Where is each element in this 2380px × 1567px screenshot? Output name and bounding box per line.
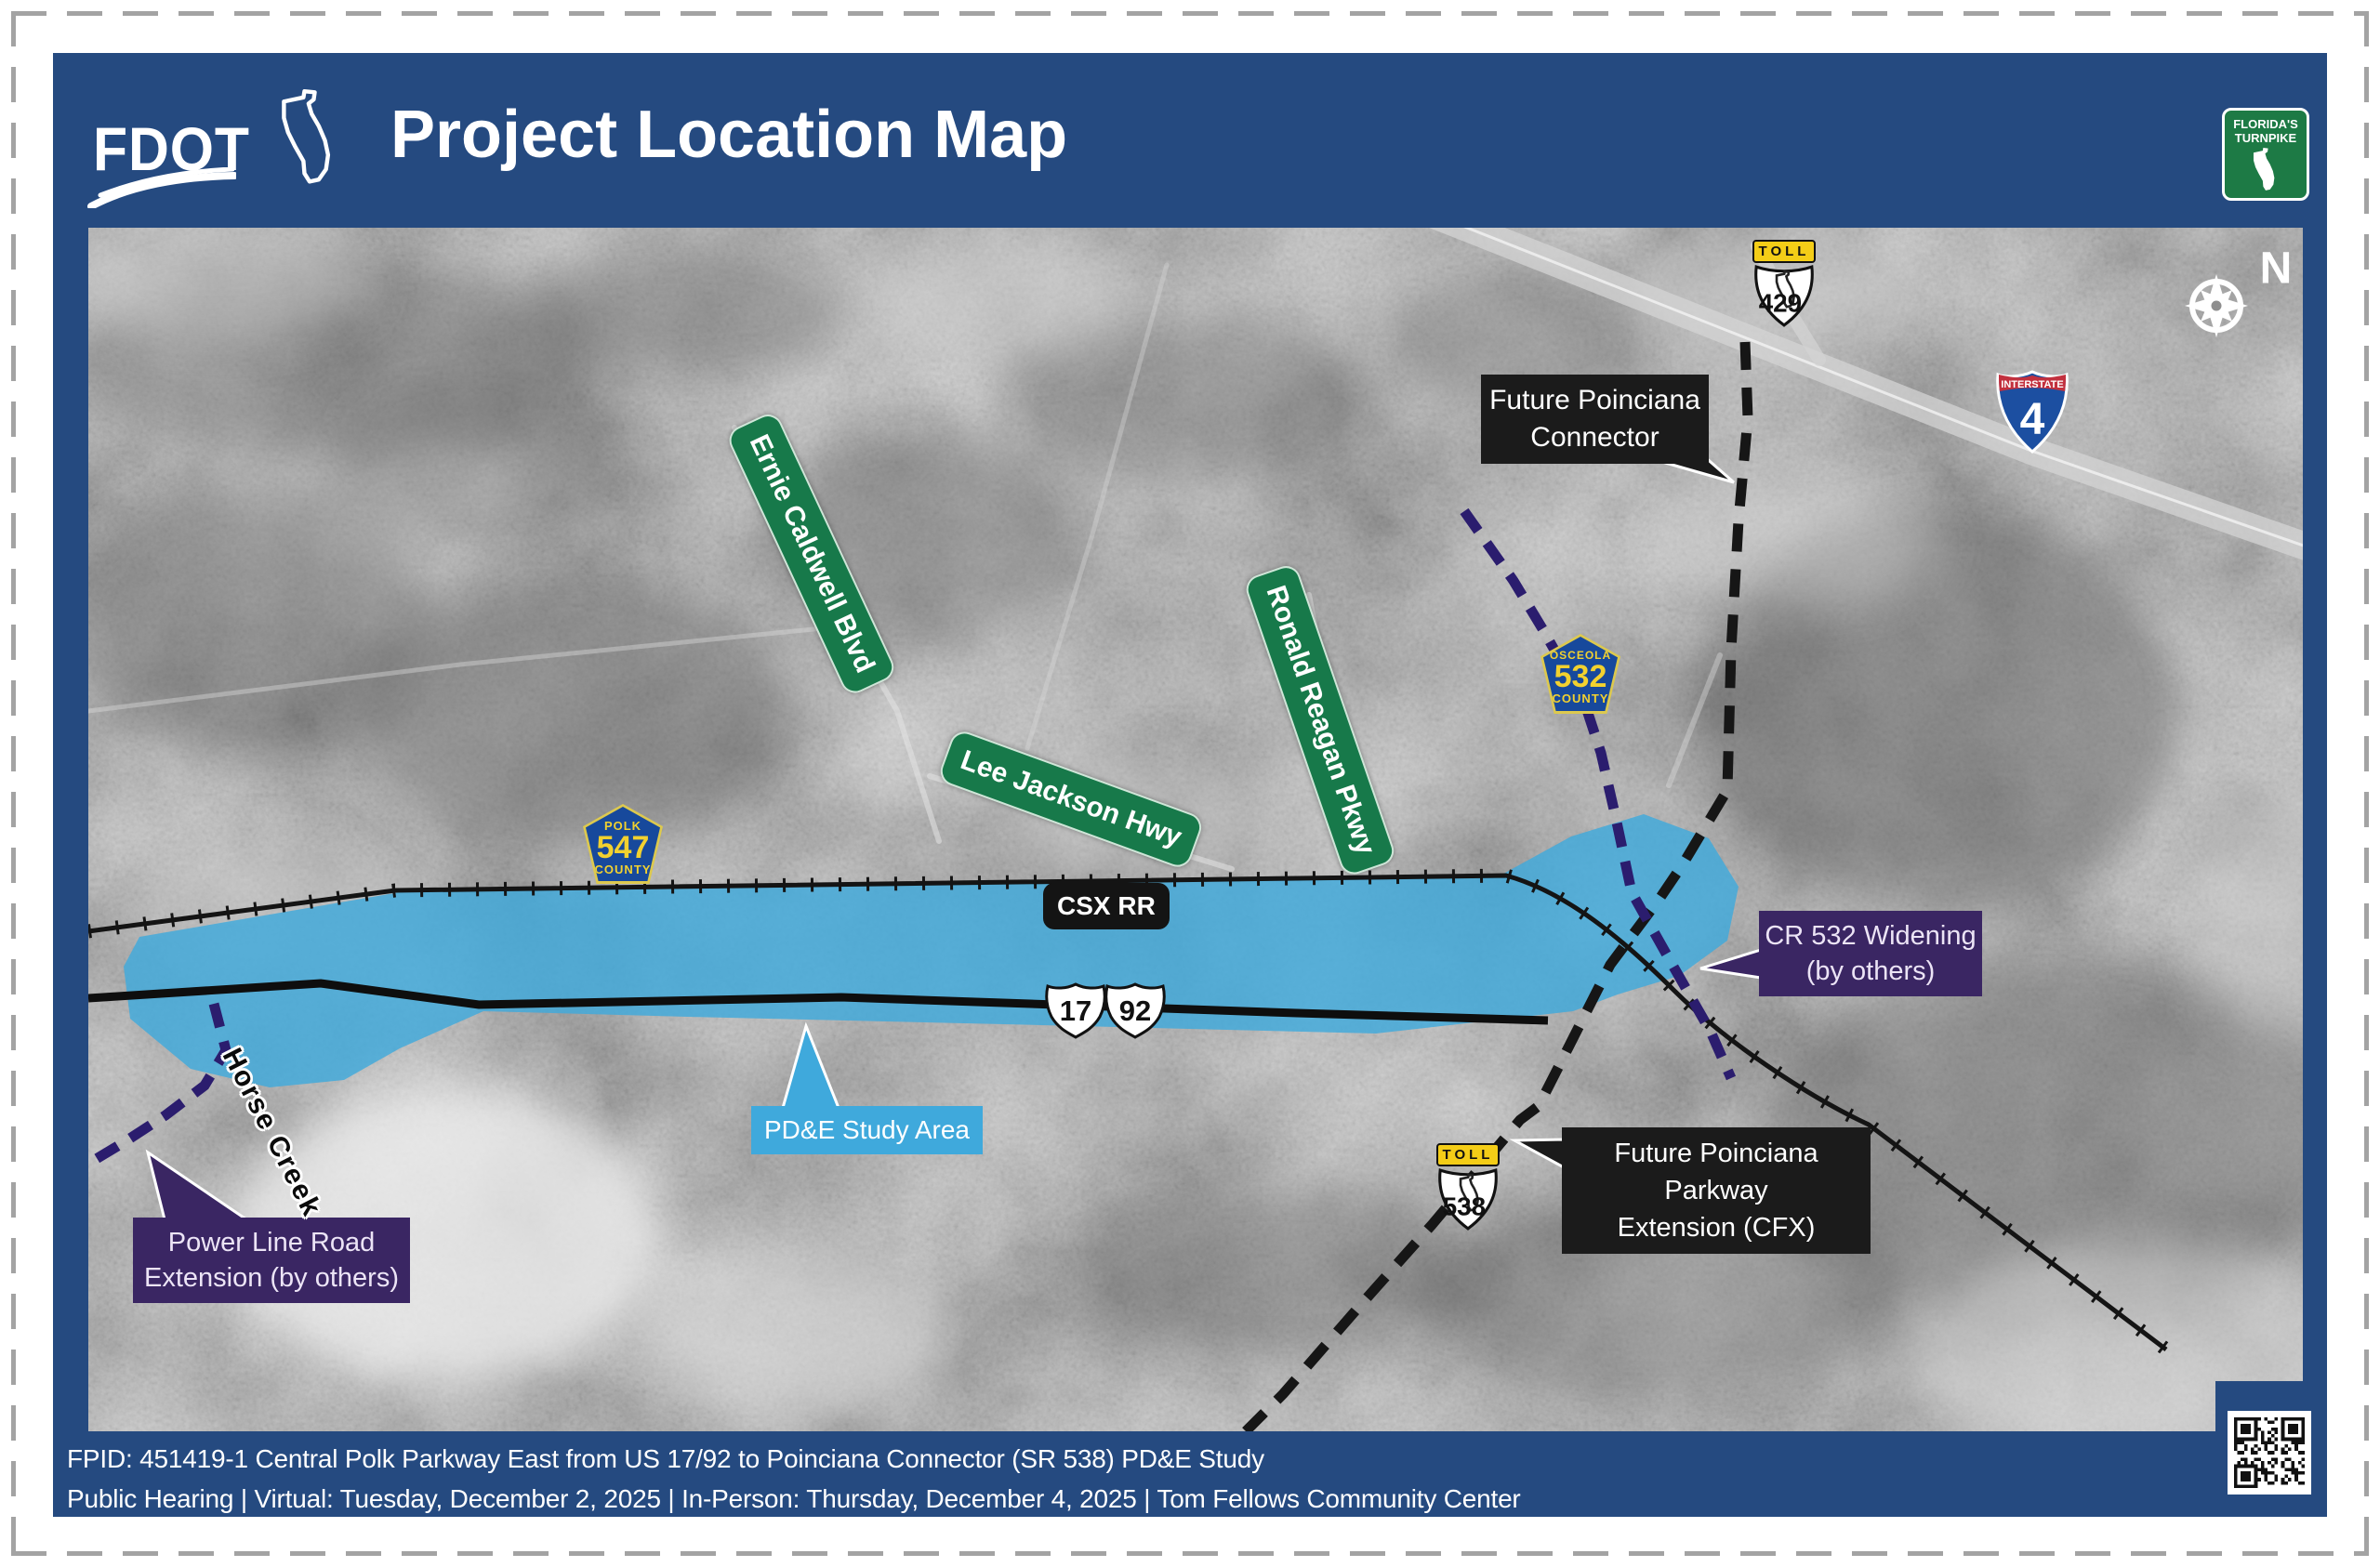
cr532-widening-line1: CR 532 Widening bbox=[1765, 918, 1977, 954]
parkway-extension-callout: Future Poinciana Parkway Extension (CFX) bbox=[1562, 1127, 1871, 1254]
interstate-4-shield: INTERSTATE 4 bbox=[1994, 367, 2070, 454]
fdot-road-swoosh-icon bbox=[87, 167, 236, 208]
county-532-number: 532 bbox=[1543, 662, 1618, 691]
cutline-bottom bbox=[11, 1551, 2369, 1556]
parkway-extension-line1: Future Poinciana Parkway bbox=[1567, 1135, 1865, 1209]
toll-429-banner: TOLL bbox=[1752, 240, 1816, 263]
cr532-widening-line2: (by others) bbox=[1765, 954, 1977, 989]
footer-line1: FPID: 451419-1 Central Polk Parkway East… bbox=[67, 1439, 1521, 1479]
cr532-widening-callout: CR 532 Widening (by others) bbox=[1759, 911, 1982, 996]
turnpike-logo-line1: FLORIDA'S bbox=[2225, 117, 2307, 131]
toll-538-badge: 538 bbox=[1436, 1166, 1500, 1231]
fdot-logo: FDOT bbox=[93, 106, 372, 208]
toll-429-shield: TOLL 429 bbox=[1752, 240, 1816, 333]
svg-text:92: 92 bbox=[1119, 994, 1151, 1027]
us-92-shield: 92 bbox=[1104, 981, 1167, 1039]
page-title: Project Location Map bbox=[390, 97, 1067, 173]
pde-study-area-callout: PD&E Study Area bbox=[751, 1106, 983, 1154]
cutline-left bbox=[11, 11, 16, 1556]
power-line-road-line1: Power Line Road bbox=[139, 1225, 404, 1260]
cutline-right bbox=[2364, 11, 2369, 1556]
north-label: N bbox=[2260, 244, 2293, 295]
turnpike-florida-silhouette-icon bbox=[2252, 147, 2280, 193]
map-canvas: N Ernie Caldwell Blvd Lee Jackson Hwy Ro… bbox=[88, 228, 2303, 1431]
toll-429-badge: 429 bbox=[1752, 263, 1816, 328]
qr-panel bbox=[2215, 1381, 2324, 1515]
footer-line2: Public Hearing | Virtual: Tuesday, Decem… bbox=[67, 1479, 1521, 1519]
florida-turnpike-logo: FLORIDA'S TURNPIKE bbox=[2222, 108, 2309, 201]
poinciana-connector-line1: Future Poinciana bbox=[1487, 382, 1703, 419]
toll-538-shield: TOLL 538 bbox=[1436, 1143, 1500, 1236]
turnpike-logo-line2: TURNPIKE bbox=[2225, 131, 2307, 145]
florida-outline-icon bbox=[281, 89, 338, 188]
svg-text:429: 429 bbox=[1759, 289, 1802, 318]
svg-text:INTERSTATE: INTERSTATE bbox=[2001, 379, 2063, 390]
us-17-shield: 17 bbox=[1044, 981, 1107, 1039]
footer-text: FPID: 451419-1 Central Polk Parkway East… bbox=[67, 1439, 1521, 1519]
csx-rr-label: CSX RR bbox=[1043, 883, 1170, 929]
svg-text:17: 17 bbox=[1060, 994, 1091, 1027]
county-532-suffix: COUNTY bbox=[1543, 691, 1618, 705]
svg-text:538: 538 bbox=[1443, 1192, 1486, 1221]
svg-text:4: 4 bbox=[2020, 395, 2045, 444]
cutline-top bbox=[11, 11, 2369, 16]
parkway-extension-line2: Extension (CFX) bbox=[1567, 1209, 1865, 1246]
qr-code bbox=[2228, 1411, 2311, 1495]
toll-538-banner: TOLL bbox=[1436, 1143, 1500, 1166]
project-location-map-page: FDOT Project Location Map FLORIDA'S TURN… bbox=[0, 0, 2380, 1567]
power-line-road-line2: Extension (by others) bbox=[139, 1260, 404, 1296]
poinciana-connector-line2: Connector bbox=[1487, 419, 1703, 456]
poster-frame: FDOT Project Location Map FLORIDA'S TURN… bbox=[53, 53, 2327, 1517]
county-547-suffix: COUNTY bbox=[586, 863, 660, 876]
county-547-number: 547 bbox=[586, 833, 660, 863]
power-line-road-callout: Power Line Road Extension (by others) bbox=[133, 1218, 410, 1303]
poinciana-connector-callout: Future Poinciana Connector bbox=[1481, 375, 1709, 464]
